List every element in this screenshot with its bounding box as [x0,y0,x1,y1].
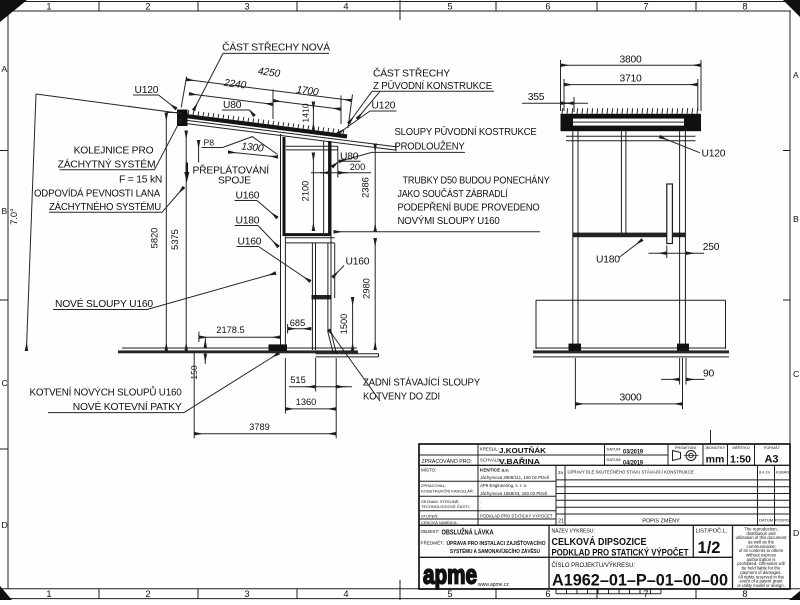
svg-text:JEDNOTKY: JEDNOTKY [705,446,726,450]
svg-text:PŘEDMĚT:: PŘEDMĚT: [421,538,444,545]
svg-text:V.BAŘINA: V.BAŘINA [499,457,540,466]
svg-text:KENTICE a.s.: KENTICE a.s. [480,467,509,472]
svg-text:DATUM: DATUM [607,457,621,462]
svg-text:SLOUPY PŪVODNÍ KOSTRUKCE: SLOUPY PŪVODNÍ KOSTRUKCE [395,125,537,138]
svg-text:3: 3 [244,589,249,599]
svg-text:SEZNAM. STROJNĚ-: SEZNAM. STROJNĚ- [421,499,461,504]
svg-text:SYSTÉMU A SAMONAVÍJECÍHO ZÁVĚS: SYSTÉMU A SAMONAVÍJECÍHO ZÁVĚSU [450,547,540,555]
svg-text:2100: 2100 [300,181,310,202]
svg-text:ZPRACOVÁNO PRO:: ZPRACOVÁNO PRO: [422,458,472,465]
svg-text:PODPIS: PODPIS [775,518,790,523]
svg-text:TECHNOLOGICKÉ ČÁSTI:: TECHNOLOGICKÉ ČÁSTI: [421,504,470,509]
svg-text:1/2: 1/2 [698,539,721,557]
svg-text:DATUM: DATUM [759,518,773,523]
svg-text:ČÍSLO PROJEKTU/VÝKRESU:: ČÍSLO PROJEKTU/VÝKRESU: [552,562,636,569]
svg-text:A: A [793,70,799,80]
svg-text:4: 4 [343,589,348,599]
svg-text:A1962–01–P–01–00–00: A1962–01–P–01–00–00 [552,571,728,589]
svg-text:LIST/POČ.L.: LIST/POČ.L. [696,528,728,535]
svg-text:Jáchymova 2908/111, 150 02 Plz: Jáchymova 2908/111, 150 02 Plzeň [480,475,550,480]
svg-text:F = 15 kN: F = 15 kN [119,174,162,185]
svg-text:STUPEŇ:: STUPEŇ: [421,513,438,518]
svg-text:4: 4 [343,2,348,12]
svg-text:B: B [2,206,8,216]
svg-text:ODPOVÍDÁ PEVNOSTI LANA: ODPOVÍDÁ PEVNOSTI LANA [34,186,160,199]
svg-text:8.4.19: 8.4.19 [759,470,770,474]
svg-text:3789: 3789 [249,422,270,432]
svg-text:685: 685 [290,318,306,328]
svg-text:KOLEJNICE PRO: KOLEJNICE PRO [74,146,154,157]
svg-text:5820: 5820 [150,228,160,249]
svg-text:2178.5: 2178.5 [216,325,244,335]
svg-text:U120: U120 [372,101,396,112]
svg-text:U180: U180 [596,255,620,266]
svg-text:6: 6 [545,589,550,599]
svg-text:NOVÝMI SLOUPY U160: NOVÝMI SLOUPY U160 [398,214,500,227]
svg-text:KONSTRUKČNÍ KANCELÁŘ:: KONSTRUKČNÍ KANCELÁŘ: [421,488,474,493]
svg-text:C: C [793,369,799,379]
svg-text:515: 515 [290,375,306,385]
svg-text:3000: 3000 [619,393,642,404]
svg-text:CENOVÁ NABÍDKA:: CENOVÁ NABÍDKA: [421,520,458,525]
svg-text:21: 21 [558,518,564,524]
svg-text:DATUM: DATUM [607,447,621,452]
svg-text:1: 1 [46,589,51,599]
svg-text:KOTVENÍ NOVÝCH SLOUPŮ U160: KOTVENÍ NOVÝCH SLOUPŮ U160 [30,386,182,399]
svg-text:1: 1 [46,2,51,12]
svg-text:5: 5 [447,2,452,12]
svg-text:POPIS ZMĚNY: POPIS ZMĚNY [642,516,680,524]
svg-text:1500: 1500 [339,314,349,335]
svg-text:.: . [480,505,481,510]
svg-text:www.apme.cz: www.apme.cz [478,582,509,588]
svg-text:PODKLAD PRO STATICKÝ VÝPOČET: PODKLAD PRO STATICKÝ VÝPOČET [480,513,553,518]
svg-text:or utility model or design.: or utility model or design. [737,583,785,588]
svg-text:OBJEKT:: OBJEKT: [421,529,440,534]
svg-text:PROMÍTÁNÍ: PROMÍTÁNÍ [675,446,697,450]
svg-text:2980: 2980 [362,278,372,299]
svg-text:MÍSTO:: MÍSTO: [421,467,436,473]
svg-text:U160: U160 [238,237,262,248]
svg-text:5375: 5375 [170,229,180,250]
svg-text:PODKLAD PRO STATICKÝ VÝPOČET: PODKLAD PRO STATICKÝ VÝPOČET [552,547,689,558]
svg-text:1360: 1360 [296,397,317,407]
svg-text:1410: 1410 [300,103,310,122]
svg-text:PŘEPLÁTOVÁNÍ: PŘEPLÁTOVÁNÍ [193,163,270,176]
svg-text:3800: 3800 [619,54,642,65]
svg-text:TRUBKY D50 BUDOU PONECHÁNY: TRUBKY D50 BUDOU PONECHÁNY [403,173,550,186]
svg-text:SPOJE: SPOJE [218,176,251,187]
svg-text:B: B [793,214,799,224]
svg-text:2a: 2a [558,470,563,475]
svg-text:ZÁCHYTNÉHO SYSTÉMU: ZÁCHYTNÉHO SYSTÉMU [49,200,161,213]
svg-text:ZPRACOVAL,: ZPRACOVAL, [421,483,446,488]
svg-text:J.KOUTŇÁK: J.KOUTŇÁK [499,446,546,455]
svg-text:04/2019: 04/2019 [623,459,643,466]
svg-text:6: 6 [545,2,550,12]
svg-text:D: D [2,520,8,530]
svg-text:MĚŘÍTKO: MĚŘÍTKO [732,445,749,450]
svg-text:FORMÁT: FORMÁT [764,446,781,450]
svg-text:7.0°: 7.0° [9,208,19,225]
svg-text:.: . [480,499,481,504]
svg-text:5: 5 [447,589,452,599]
svg-text:OBSLUŽNÁ LÁVKA: OBSLUŽNÁ LÁVKA [442,528,494,537]
svg-text:JAKO SOUČÁST ZÁBRADLÍ: JAKO SOUČÁST ZÁBRADLÍ [398,187,508,200]
svg-text:2240: 2240 [222,78,247,92]
svg-text:A: A [2,64,8,74]
svg-text:ZÁCHYTNÝ SYSTÉM: ZÁCHYTNÝ SYSTÉM [58,158,156,171]
svg-text:1:50: 1:50 [730,453,751,465]
svg-text:CELKOVÁ DIPSOZICE: CELKOVÁ DIPSOZICE [552,535,647,548]
svg-text:mm: mm [706,453,725,465]
svg-text:PRODLOUŽENY: PRODLOUŽENY [395,139,465,152]
svg-text:1700: 1700 [296,85,320,99]
svg-text:A3: A3 [764,454,778,466]
svg-text:NOVÉ SLOUPY U160: NOVÉ SLOUPY U160 [55,297,153,310]
svg-text:8: 8 [742,2,747,12]
svg-text:U160: U160 [346,256,370,267]
svg-text:NÁZEV VÝKRESU:: NÁZEV VÝKRESU: [552,528,595,535]
svg-text:U180: U180 [236,216,260,227]
svg-text:8: 8 [742,589,747,599]
svg-text:NOVÉ KOTEVNÍ PATKY: NOVÉ KOTEVNÍ PATKY [73,400,182,413]
svg-text:2: 2 [145,2,150,12]
svg-text:U120: U120 [702,148,726,159]
svg-text:KRESLIL:: KRESLIL: [480,447,499,452]
svg-text:Jáchymova 1558/43, 150 02 Plze: Jáchymova 1558/43, 150 02 Plzeň [480,491,548,496]
svg-text:Z PŪVODNÍ KONSTRUKCE: Z PŪVODNÍ KONSTRUKCE [373,79,492,92]
svg-text:D: D [793,528,799,538]
svg-text:U120: U120 [135,85,159,96]
svg-text:7: 7 [643,2,648,12]
svg-text:P8: P8 [204,137,215,147]
svg-text:KUBÁN: KUBÁN [776,470,789,474]
svg-text:apme: apme [423,560,477,590]
svg-text:3710: 3710 [619,73,642,84]
svg-text:PODEPŘENÍ BUDE PROVEDENO: PODEPŘENÍ BUDE PROVEDENO [398,200,540,213]
svg-text:ČÁST STŘECHY NOVÁ: ČÁST STŘECHY NOVÁ [222,40,330,53]
svg-text:2386: 2386 [360,177,370,198]
svg-text:ÚPRAVY DLE SKUTEČNÉHO STAVU ST: ÚPRAVY DLE SKUTEČNÉHO STAVU STÁVAJÍCÍ KO… [568,469,695,474]
svg-text:AP9 Engineering, s. r. o.: AP9 Engineering, s. r. o. [480,483,527,488]
svg-text:03/2019: 03/2019 [623,449,643,456]
svg-text:ÚPRAVA PRO INSTALACI ZAJIŠŤOVA: ÚPRAVA PRO INSTALACI ZAJIŠŤOVACÍHO [447,539,546,547]
svg-text:200: 200 [350,162,366,172]
svg-text:ZADNÍ STÁVAJÍCÍ SLOUPY: ZADNÍ STÁVAJÍCÍ SLOUPY [363,375,480,388]
svg-text:1300: 1300 [241,141,265,154]
svg-text:ČÁST STŘECHY: ČÁST STŘECHY [373,66,450,79]
svg-text:4250: 4250 [257,66,281,80]
svg-text:355: 355 [528,92,545,103]
svg-text:3: 3 [244,2,249,12]
svg-text:90: 90 [703,368,715,379]
svg-text:C: C [2,378,8,388]
svg-text:2: 2 [145,589,150,599]
svg-text:250: 250 [703,242,720,253]
